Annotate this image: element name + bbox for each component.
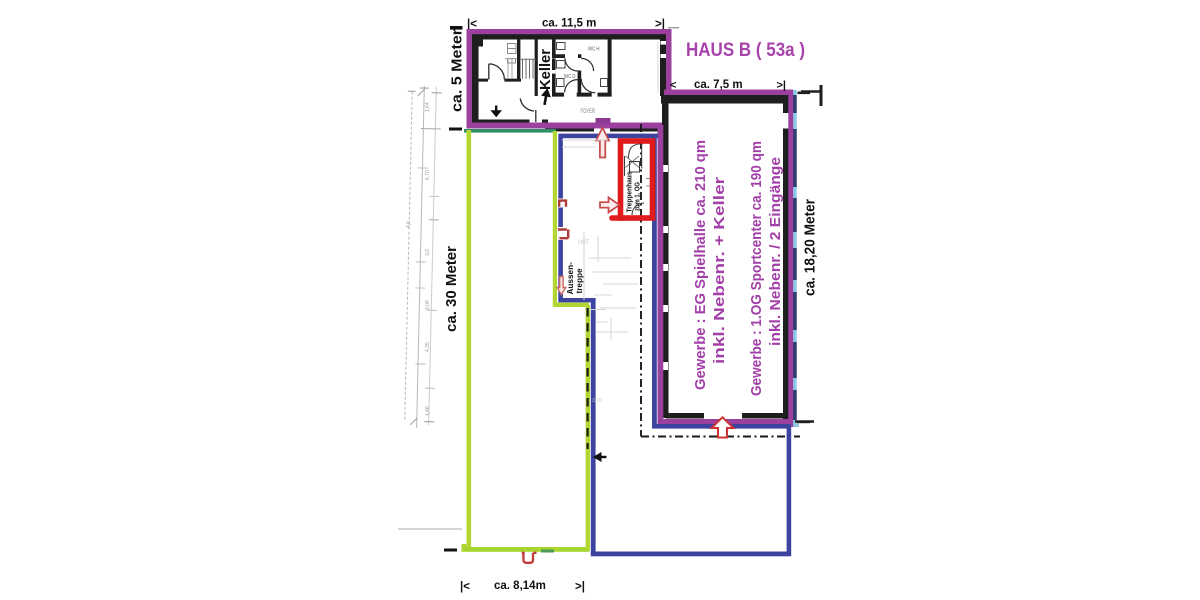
svg-text:inkl. Nebenr. + Keller: inkl. Nebenr. + Keller [711,177,728,364]
svg-text:ca. 8,14m: ca. 8,14m [494,580,546,592]
svg-text:ca. 30 Meter: ca. 30 Meter [443,246,460,332]
svg-text:ca. 18,20 Meter: ca. 18,20 Meter [802,199,819,296]
svg-text:inkl. Nebenr. / 2 Eingänge: inkl. Nebenr. / 2 Eingänge [767,157,784,346]
svg-text:Aussen-: Aussen- [566,262,575,295]
svg-text:ca. 7,5 m: ca. 7,5 m [694,79,743,91]
svg-text:3,0: 3,0 [425,249,431,256]
svg-text:6,70: 6,70 [425,170,431,180]
svg-text:>|: >| [655,19,665,31]
svg-text:1,46: 1,46 [425,406,431,416]
svg-text:ca. 5 Meter: ca. 5 Meter [449,29,466,112]
svg-text:Gewerbe : EG Spielhalle ca. 21: Gewerbe : EG Spielhalle ca. 210 qm [692,140,709,390]
svg-text:1,64: 1,64 [425,102,431,112]
svg-text:|<: |< [467,19,477,31]
svg-text:4,35: 4,35 [425,342,431,352]
svg-text:3,08: 3,08 [425,300,431,310]
svg-text:ca. 11,5 m: ca. 11,5 m [542,18,596,30]
svg-text:Keller: Keller [538,49,554,90]
svg-text:Gewerbe : 1.OG Sportcenter ca.: Gewerbe : 1.OG Sportcenter ca. 190 qm [748,141,765,396]
svg-text:treppe: treppe [575,268,584,293]
svg-text:H0T: H0T [578,240,590,246]
svg-text:FOYER: FOYER [581,109,596,115]
svg-text:HAUS B ( 53a ): HAUS B ( 53a ) [686,40,805,61]
svg-text:WC H: WC H [588,47,600,53]
svg-text:>|: >| [777,80,787,92]
svg-text:zum 1. OG: zum 1. OG [633,182,642,211]
svg-text:3,70: 3,70 [592,398,602,404]
svg-text:<: < [670,80,676,92]
svg-text:4,6: 4,6 [406,221,412,228]
svg-text:WC D: WC D [564,74,576,80]
svg-text:|<: |< [460,581,470,593]
svg-text:>|: >| [575,581,585,593]
